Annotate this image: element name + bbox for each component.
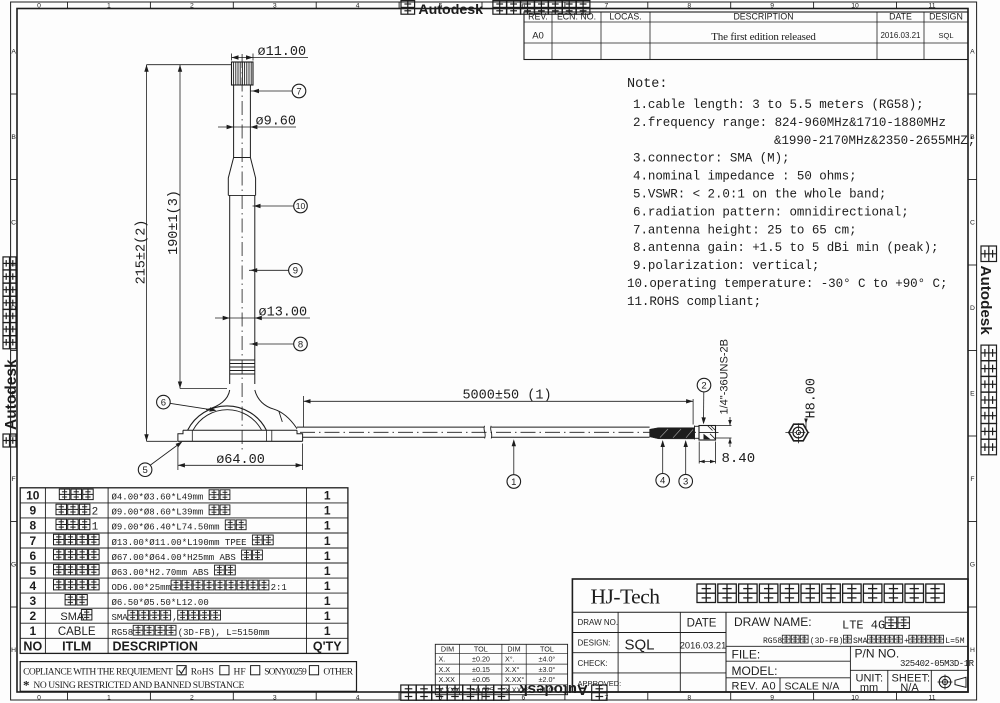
svg-text:325402-05M3D-1R: 325402-05M3D-1R <box>900 659 975 669</box>
svg-text:Autodesk: Autodesk <box>3 359 20 430</box>
svg-text:11: 11 <box>928 2 935 9</box>
svg-text:1: 1 <box>324 624 331 638</box>
svg-text:3: 3 <box>273 695 277 702</box>
svg-text:COPLIANCE WITH THE REQUIEMENT: COPLIANCE WITH THE REQUIEMENT <box>23 667 173 677</box>
svg-text:4: 4 <box>660 476 665 487</box>
svg-text:ECN. NO.: ECN. NO. <box>557 12 596 22</box>
svg-text:±3.0°: ±3.0° <box>539 665 556 674</box>
svg-text:5: 5 <box>142 465 147 476</box>
svg-text:X.XX: X.XX <box>439 675 456 684</box>
svg-text:C: C <box>11 220 16 227</box>
svg-text:8: 8 <box>29 519 36 533</box>
svg-text:0: 0 <box>37 2 41 9</box>
svg-text:7: 7 <box>296 86 301 97</box>
svg-text:±2.0°: ±2.0° <box>539 675 556 684</box>
svg-text:ø11.00: ø11.00 <box>258 45 307 60</box>
svg-text:10: 10 <box>851 2 859 9</box>
svg-text:CHECK:: CHECK: <box>578 659 608 668</box>
svg-text:Ø9.00*Ø6.40*L74.50mm: Ø9.00*Ø6.40*L74.50mm <box>112 523 220 533</box>
svg-text:3: 3 <box>29 594 36 608</box>
svg-text:DIM: DIM <box>507 645 520 654</box>
svg-text:Ø4.00*Ø3.60*L49mm: Ø4.00*Ø3.60*L49mm <box>112 493 204 503</box>
svg-text:TOL: TOL <box>474 645 488 654</box>
svg-text:9: 9 <box>770 2 774 9</box>
svg-text:LTE 4G: LTE 4G <box>842 619 885 633</box>
svg-text:D: D <box>11 305 16 312</box>
svg-text:1: 1 <box>107 2 111 9</box>
svg-text:ø64.00: ø64.00 <box>216 453 265 468</box>
svg-text:SMA: SMA <box>853 637 868 646</box>
svg-text:ø13.00: ø13.00 <box>259 306 308 321</box>
svg-text:8: 8 <box>687 695 691 702</box>
svg-text:NO USING RESTRICTED AND BANNED: NO USING RESTRICTED AND BANNED SUBSTANCE <box>33 681 244 691</box>
svg-text:2:1: 2:1 <box>271 583 287 593</box>
svg-text:1.cable length: 3 to 5.5 meter: 1.cable length: 3 to 5.5 meters (RG58); <box>633 98 924 112</box>
svg-text:0: 0 <box>37 695 41 702</box>
svg-text:B: B <box>11 134 16 141</box>
svg-text:10.operating temperature: -30°: 10.operating temperature: -30° C to +90°… <box>627 277 947 291</box>
svg-text:±0.05: ±0.05 <box>472 675 490 684</box>
svg-text:HF: HF <box>234 667 246 677</box>
svg-text:DESCRIPTION: DESCRIPTION <box>113 639 198 653</box>
svg-text:±4.0°: ±4.0° <box>539 654 556 663</box>
svg-text:RG58: RG58 <box>763 637 782 646</box>
svg-text:E: E <box>970 391 975 398</box>
svg-text:HJ-Tech: HJ-Tech <box>591 585 661 609</box>
svg-text:DESCRIPTION: DESCRIPTION <box>733 12 793 22</box>
svg-text:1: 1 <box>324 549 331 563</box>
svg-text:215±2(2): 215±2(2) <box>135 220 150 285</box>
svg-text:NO: NO <box>23 639 42 653</box>
svg-text:P/N NO.: P/N NO. <box>855 647 900 661</box>
svg-text:Q'TY: Q'TY <box>313 639 342 653</box>
svg-text:±1.0°: ±1.0° <box>539 685 556 694</box>
svg-text:SQL: SQL <box>624 637 654 654</box>
svg-text:Ø6.50*Ø5.50*L12.00: Ø6.50*Ø5.50*L12.00 <box>112 598 209 608</box>
svg-text:The first edition released: The first edition released <box>711 31 816 43</box>
svg-text:RG58: RG58 <box>112 628 134 638</box>
svg-text:,: , <box>172 613 177 623</box>
svg-text:&1990-2170MHz&2350-2655MHZ;: &1990-2170MHz&2350-2655MHZ; <box>774 134 975 148</box>
svg-text:±0.025: ±0.025 <box>472 685 494 694</box>
svg-text:8: 8 <box>687 2 691 9</box>
svg-text:Ø13.00*Ø11.00*L190mm TPEE: Ø13.00*Ø11.00*L190mm TPEE <box>112 538 247 548</box>
svg-text:LOCAS.: LOCAS. <box>609 12 641 22</box>
svg-text:1: 1 <box>107 695 111 702</box>
svg-text:1: 1 <box>92 522 99 534</box>
svg-text:+: + <box>904 637 909 646</box>
svg-text:X.X: X.X <box>439 665 451 674</box>
svg-text:SMA: SMA <box>112 613 129 623</box>
svg-text:D: D <box>970 305 975 312</box>
svg-text:8.40: 8.40 <box>722 451 756 467</box>
svg-text:11.ROHS compliant;: 11.ROHS compliant; <box>627 295 761 309</box>
svg-text:9.polarization: vertical;: 9.polarization: vertical; <box>633 259 819 273</box>
svg-text:Ø9.00*Ø8.60*L39mm: Ø9.00*Ø8.60*L39mm <box>112 508 204 518</box>
svg-text:ø9.60: ø9.60 <box>256 115 297 130</box>
svg-text:ITLM: ITLM <box>62 639 91 653</box>
svg-text:Autodesk: Autodesk <box>418 2 483 18</box>
svg-text:2: 2 <box>29 609 36 623</box>
svg-text:1: 1 <box>324 519 331 533</box>
svg-text:±0.20: ±0.20 <box>472 654 490 663</box>
svg-text:5.VSWR: < 2.0:1 on the whole b: 5.VSWR: < 2.0:1 on the whole band; <box>633 188 886 202</box>
svg-text:2: 2 <box>92 507 99 519</box>
svg-text:3: 3 <box>683 477 688 488</box>
svg-text:9: 9 <box>293 266 298 277</box>
svg-text:1: 1 <box>324 594 331 608</box>
svg-text:1: 1 <box>511 477 516 488</box>
svg-text:CABLE: CABLE <box>58 626 96 638</box>
svg-text:DRAW NAME:: DRAW NAME: <box>734 615 812 629</box>
svg-text:DATE: DATE <box>889 12 912 22</box>
svg-text:mm: mm <box>860 682 878 694</box>
svg-text:A0: A0 <box>532 31 544 42</box>
svg-text:4: 4 <box>29 579 36 593</box>
svg-text:H: H <box>970 647 975 654</box>
svg-text:1: 1 <box>324 564 331 578</box>
svg-text:10: 10 <box>26 489 40 503</box>
svg-text:2.frequency range: 824-960MHz&: 2.frequency range: 824-960MHz&1710-1880M… <box>633 116 946 130</box>
svg-text:8: 8 <box>298 339 303 350</box>
svg-text:REV.: REV. <box>528 12 548 22</box>
svg-text:G: G <box>11 562 16 569</box>
svg-text:SQL: SQL <box>938 31 953 40</box>
svg-text:10: 10 <box>296 201 306 211</box>
svg-text:7: 7 <box>604 2 608 9</box>
svg-text:X.X°: X.X° <box>505 665 520 674</box>
svg-text:SCALE N/A: SCALE N/A <box>785 681 840 693</box>
svg-text:(3D-FB): (3D-FB) <box>810 637 844 646</box>
svg-text:X°.: X°. <box>505 654 515 663</box>
svg-text:4.nominal impedance : 50 ohms;: 4.nominal impedance : 50 ohms; <box>633 170 857 184</box>
svg-text:X.: X. <box>439 654 446 663</box>
svg-text:TOL: TOL <box>540 645 554 654</box>
svg-text:6: 6 <box>161 398 166 409</box>
svg-text:1: 1 <box>324 504 331 518</box>
svg-text:Ø67.00*Ø64.00*H25mm ABS: Ø67.00*Ø64.00*H25mm ABS <box>112 553 236 563</box>
svg-text:1: 1 <box>29 624 36 638</box>
svg-text:X.XXX: X.XXX <box>439 685 460 694</box>
svg-text:F: F <box>970 476 974 483</box>
svg-text:C: C <box>970 220 975 227</box>
svg-text:3: 3 <box>273 2 277 9</box>
svg-text:1: 1 <box>324 579 331 593</box>
svg-text:3.connector: SMA (M);: 3.connector: SMA (M); <box>633 152 789 166</box>
svg-text:*: * <box>23 677 30 692</box>
svg-text:DESIGN:: DESIGN: <box>578 639 611 648</box>
svg-text:2016.03.21: 2016.03.21 <box>680 641 727 651</box>
svg-text:F: F <box>12 476 16 483</box>
svg-text:7.antenna height: 25 to 65 cm;: 7.antenna height: 25 to 65 cm; <box>633 223 857 237</box>
svg-text:5000±50 (1): 5000±50 (1) <box>462 388 551 403</box>
svg-text:190±1(3): 190±1(3) <box>167 190 182 255</box>
svg-text:A: A <box>970 49 975 56</box>
svg-text:G: G <box>970 562 975 569</box>
svg-text:5: 5 <box>29 564 36 578</box>
svg-text:2: 2 <box>701 381 706 392</box>
svg-text:N/A: N/A <box>900 682 919 694</box>
svg-text:RoHS: RoHS <box>191 667 214 677</box>
svg-text:A: A <box>11 49 16 56</box>
svg-text:9: 9 <box>29 504 36 518</box>
svg-text:11: 11 <box>928 695 935 702</box>
svg-text:Ø63.00*H2.70mm ABS: Ø63.00*H2.70mm ABS <box>112 568 209 578</box>
svg-text:DATE: DATE <box>687 618 717 630</box>
svg-text:7: 7 <box>29 534 36 548</box>
svg-text:(3D-FB), L=5150mm: (3D-FB), L=5150mm <box>178 628 270 638</box>
svg-text:6.radiation pattern: omnidirec: 6.radiation pattern: omnidirectional; <box>633 205 909 219</box>
svg-text:FILE:: FILE: <box>732 648 761 662</box>
svg-text:DIM: DIM <box>441 645 454 654</box>
svg-text:REV. A0: REV. A0 <box>732 681 777 693</box>
svg-text:X.XXX°: X.XXX° <box>505 685 529 694</box>
svg-text:OD6.00*25mm: OD6.00*25mm <box>112 583 171 593</box>
svg-text:H8.00: H8.00 <box>805 378 820 419</box>
svg-text:DRAW NO.: DRAW NO. <box>578 618 619 627</box>
svg-text:8.antenna gain: +1.5 to 5 dBi: 8.antenna gain: +1.5 to 5 dBi min (peak)… <box>633 241 939 255</box>
svg-text:L=5M: L=5M <box>945 637 964 646</box>
svg-text:1/4"-36UNS-2B: 1/4"-36UNS-2B <box>719 339 731 414</box>
svg-text:H: H <box>11 647 16 654</box>
svg-text:OTHER: OTHER <box>323 667 353 677</box>
svg-text:6: 6 <box>29 549 36 563</box>
svg-text:10: 10 <box>851 695 859 702</box>
svg-text:2: 2 <box>190 695 194 702</box>
svg-text:4: 4 <box>356 695 360 702</box>
svg-text:±0.15: ±0.15 <box>472 665 490 674</box>
svg-text:2016.03.21: 2016.03.21 <box>880 31 921 40</box>
svg-text:2: 2 <box>190 2 194 9</box>
svg-text:X.XX°: X.XX° <box>505 675 524 684</box>
svg-text:4: 4 <box>356 2 360 9</box>
svg-text:MODEL:: MODEL: <box>732 664 778 678</box>
svg-text:1: 1 <box>324 489 331 503</box>
svg-text:SONY00259: SONY00259 <box>264 667 307 677</box>
svg-text:Autodesk: Autodesk <box>977 266 994 336</box>
svg-text:1: 1 <box>324 534 331 548</box>
svg-text:Note:: Note: <box>627 77 668 92</box>
svg-text:APPROVED:: APPROVED: <box>578 679 622 688</box>
svg-text:DESIGN: DESIGN <box>929 12 963 22</box>
svg-text:9: 9 <box>770 695 774 702</box>
svg-text:1: 1 <box>324 609 331 623</box>
